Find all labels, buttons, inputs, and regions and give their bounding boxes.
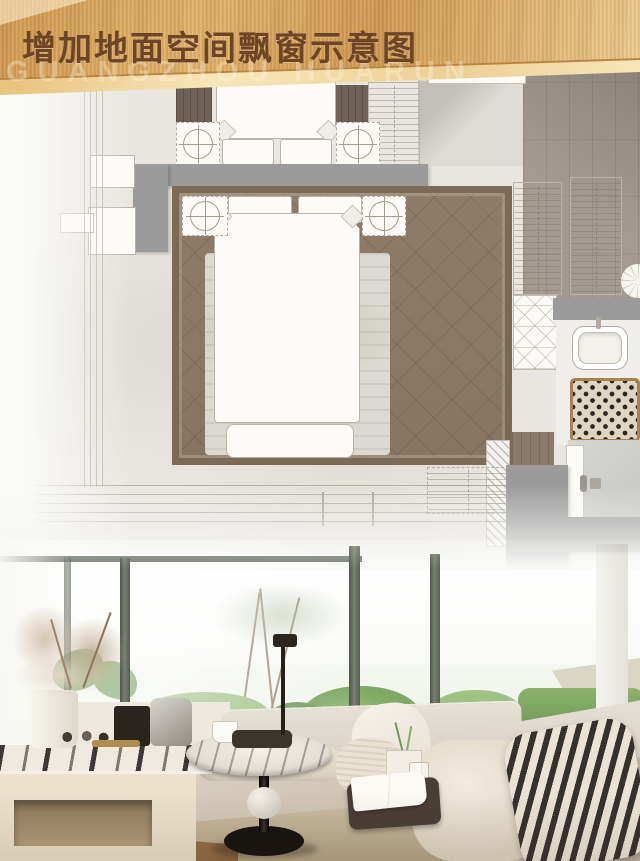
lamp-symbol-icon	[190, 201, 220, 231]
title-banner: GUANGZHOU HUARUN 增加地面空间飘窗示意图	[0, 0, 640, 100]
gold-tray	[92, 740, 140, 747]
wall-leg	[133, 164, 168, 252]
bay-window-photo	[0, 540, 640, 861]
sill-tick	[322, 492, 324, 526]
wardrobe-hangers	[570, 177, 622, 295]
wall-band	[133, 164, 428, 186]
shower-door-handle	[580, 475, 587, 492]
wood-patch	[512, 432, 554, 465]
upper-pillow	[222, 139, 274, 165]
sink-basin	[578, 332, 622, 364]
bed-bench	[226, 424, 354, 458]
faucet-icon	[596, 317, 601, 329]
shower-door-knob	[590, 478, 601, 489]
schematic-poster: GUANGZHOU HUARUN 增加地面空间飘窗示意图	[0, 0, 640, 861]
sill-tick	[372, 492, 374, 526]
lamp-symbol-icon	[369, 201, 399, 231]
page-title: 增加地面空间飘窗示意图	[22, 21, 418, 70]
lamp-symbol-icon	[343, 129, 373, 159]
upper-pillow	[280, 139, 332, 165]
kettle	[150, 698, 192, 746]
bed-duvet	[214, 213, 360, 423]
linen-shelf	[513, 295, 557, 370]
portable-lamp-head	[273, 634, 297, 647]
photo-vignette	[0, 790, 640, 861]
plan-left-fade	[0, 55, 130, 580]
wardrobe-hangers	[513, 182, 562, 295]
marble-countertop	[0, 745, 212, 774]
mosaic-mat	[570, 378, 640, 442]
portable-lamp-pole	[281, 643, 285, 735]
wall-corner-horz	[506, 517, 640, 552]
floor-plan	[0, 55, 640, 580]
lamp-symbol-icon	[183, 129, 213, 159]
